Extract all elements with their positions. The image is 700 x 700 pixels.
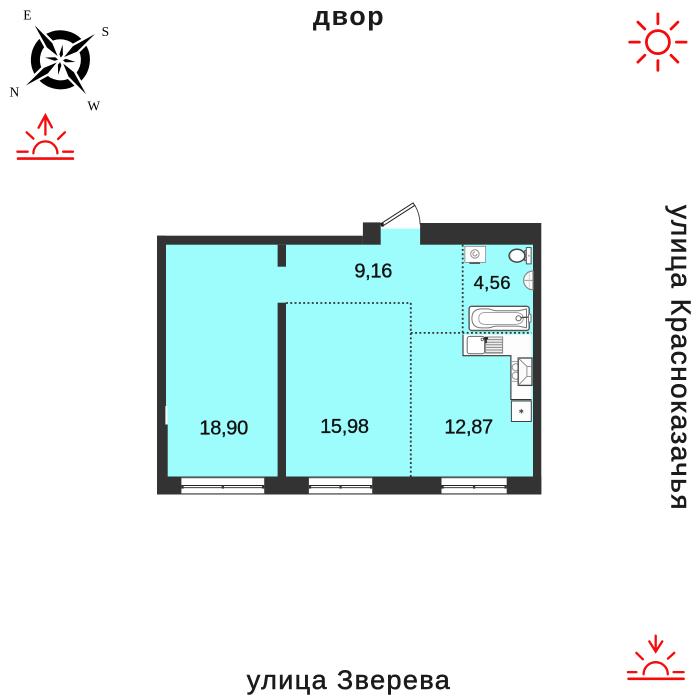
- svg-text:E: E: [23, 7, 31, 22]
- svg-text:9,16: 9,16: [354, 261, 392, 283]
- svg-text:улица Краснoказачья: улица Краснoказачья: [666, 205, 697, 511]
- svg-text:15,98: 15,98: [320, 416, 369, 438]
- svg-text:улица Зверева: улица Зверева: [247, 665, 451, 695]
- svg-text:12,87: 12,87: [444, 416, 493, 438]
- svg-text:N: N: [10, 84, 20, 99]
- svg-text:4,56: 4,56: [474, 272, 511, 293]
- svg-text:двор: двор: [313, 1, 385, 31]
- svg-text:S: S: [102, 24, 110, 39]
- svg-text:W: W: [87, 98, 100, 113]
- svg-text:18,90: 18,90: [199, 418, 248, 440]
